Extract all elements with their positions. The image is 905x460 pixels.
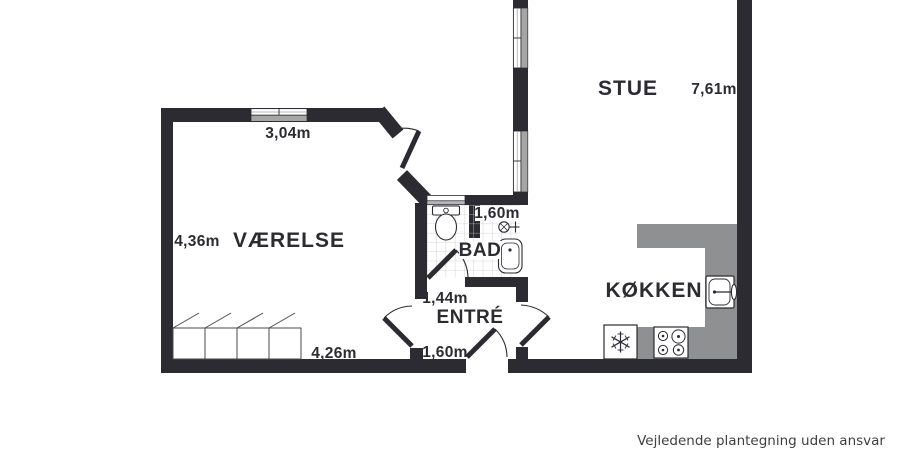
wall-entre-stue-upper [516, 287, 528, 302]
window-vaerelse-top [251, 109, 307, 122]
door-entre-vaerelse [384, 306, 412, 346]
window-bad-top [427, 195, 465, 204]
wall-left [161, 108, 173, 373]
freezer-snowflake-icon [604, 325, 637, 359]
dim-entre-bottom: 1,60m [422, 344, 467, 361]
disclaimer-text: Vejledende plantegning uden ansvar [637, 433, 885, 449]
windows [251, 8, 528, 205]
dim-entre-top: 1,44m [422, 290, 467, 307]
dim-vaerelse-left: 4,36m [174, 233, 219, 250]
wall-bottom-right [508, 359, 752, 373]
floor-plan: STUE 7,61m 3,04m 4,36m VÆRELSE 4,26m 1,6… [0, 0, 905, 460]
stove-burners-icon [654, 327, 688, 358]
wall-bad-left [415, 203, 427, 299]
dim-stue-right: 7,61m [691, 81, 736, 98]
wall-bad-bottom [465, 277, 528, 287]
room-label-bad: BAD [459, 240, 502, 261]
bathroom-sink-icon [499, 239, 523, 273]
wall-chamfer-upper [379, 111, 398, 134]
wall-right-stue [737, 0, 752, 373]
wall-entre-stue-stub [516, 347, 528, 359]
window-stue-left-lower [513, 131, 527, 192]
dim-vaerelse-bottom: 4,26m [311, 345, 356, 362]
door-entre-stue [521, 305, 549, 345]
floor-plan-page: STUE 7,61m 3,04m 4,36m VÆRELSE 4,26m 1,6… [0, 0, 905, 460]
wardrobe-icon [173, 313, 301, 359]
wall-entre-left-stub [410, 348, 423, 359]
kitchen-counter-top [637, 224, 737, 248]
room-label-koekken: KØKKEN [605, 279, 702, 302]
room-label-vaerelse: VÆRELSE [233, 229, 345, 252]
room-label-entre: ENTRÉ [437, 306, 504, 328]
window-stue-left-upper [513, 8, 527, 68]
dim-window-top: 3,04m [265, 125, 310, 142]
door-front-entrance [467, 329, 507, 357]
dim-bad-top: 1,60m [474, 205, 519, 222]
room-label-stue: STUE [598, 77, 658, 100]
